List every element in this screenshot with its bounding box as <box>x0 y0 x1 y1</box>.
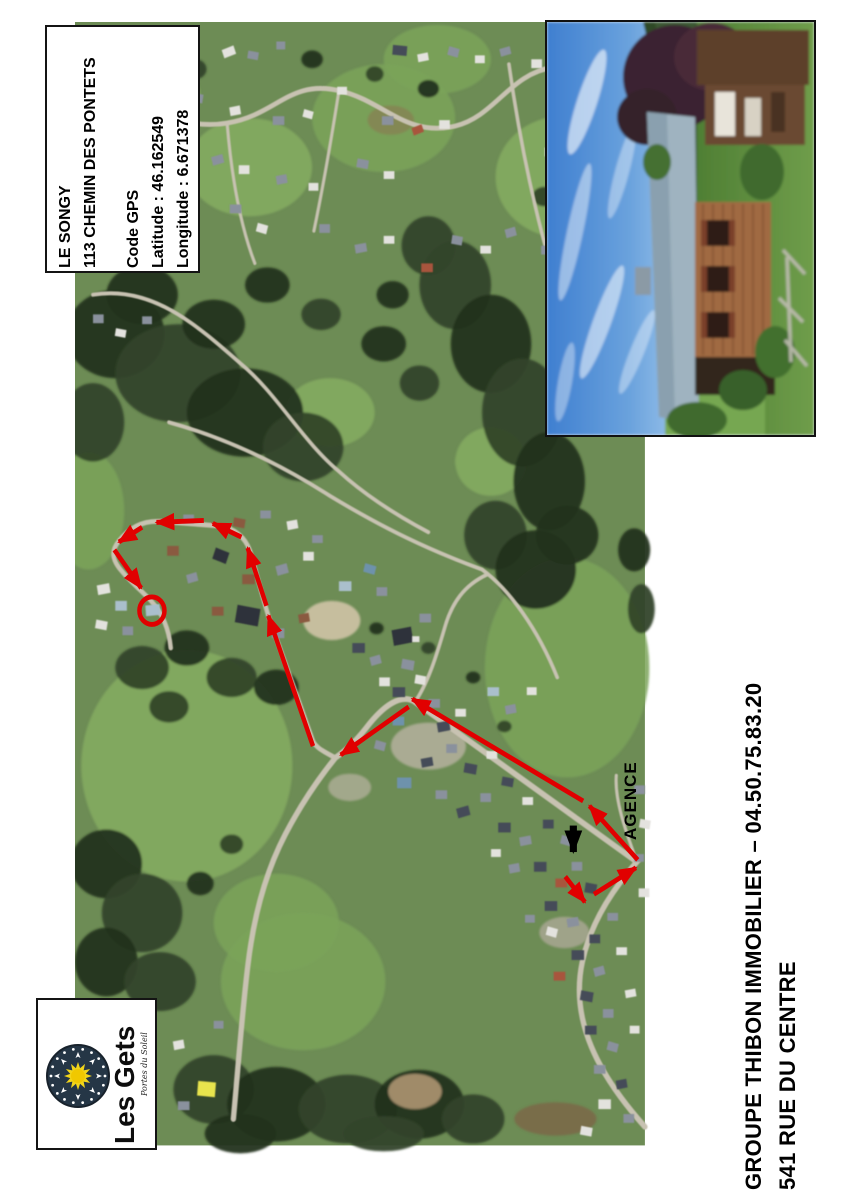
footer-text: GROUPE THIBON IMMOBILIER – 04.50.75.83.2… <box>737 622 805 1190</box>
les-gets-logo-text: Les Gets <box>110 1006 140 1144</box>
route-arrow <box>156 520 203 522</box>
agency-label-wrap: AGENCE <box>612 756 650 840</box>
property-name: LE SONGY <box>53 30 78 268</box>
footer-agency-line: GROUPE THIBON IMMOBILIER – 04.50.75.83.2… <box>737 622 771 1190</box>
property-address: 113 CHEMIN DES PONTETS <box>78 30 103 268</box>
property-info-box: LE SONGY 113 CHEMIN DES PONTETS Code GPS… <box>45 25 200 273</box>
location-map-document: LE SONGY 113 CHEMIN DES PONTETS Code GPS… <box>0 0 848 1200</box>
footer-address-line: 541 RUE DU CENTRE <box>771 622 805 1190</box>
les-gets-logo-text-wrap: Les Gets Portes du Soleil <box>110 1006 154 1144</box>
les-gets-logo-tagline: Portes du Soleil <box>140 1006 150 1096</box>
les-gets-sun-icon <box>44 1042 112 1110</box>
agency-label: AGENCE <box>621 761 640 840</box>
gps-title: Code GPS <box>121 30 146 268</box>
property-photo <box>545 20 816 437</box>
gps-longitude: Longitude : 6.671378 <box>171 30 196 268</box>
gps-latitude: Latitude : 46.162549 <box>146 30 171 268</box>
